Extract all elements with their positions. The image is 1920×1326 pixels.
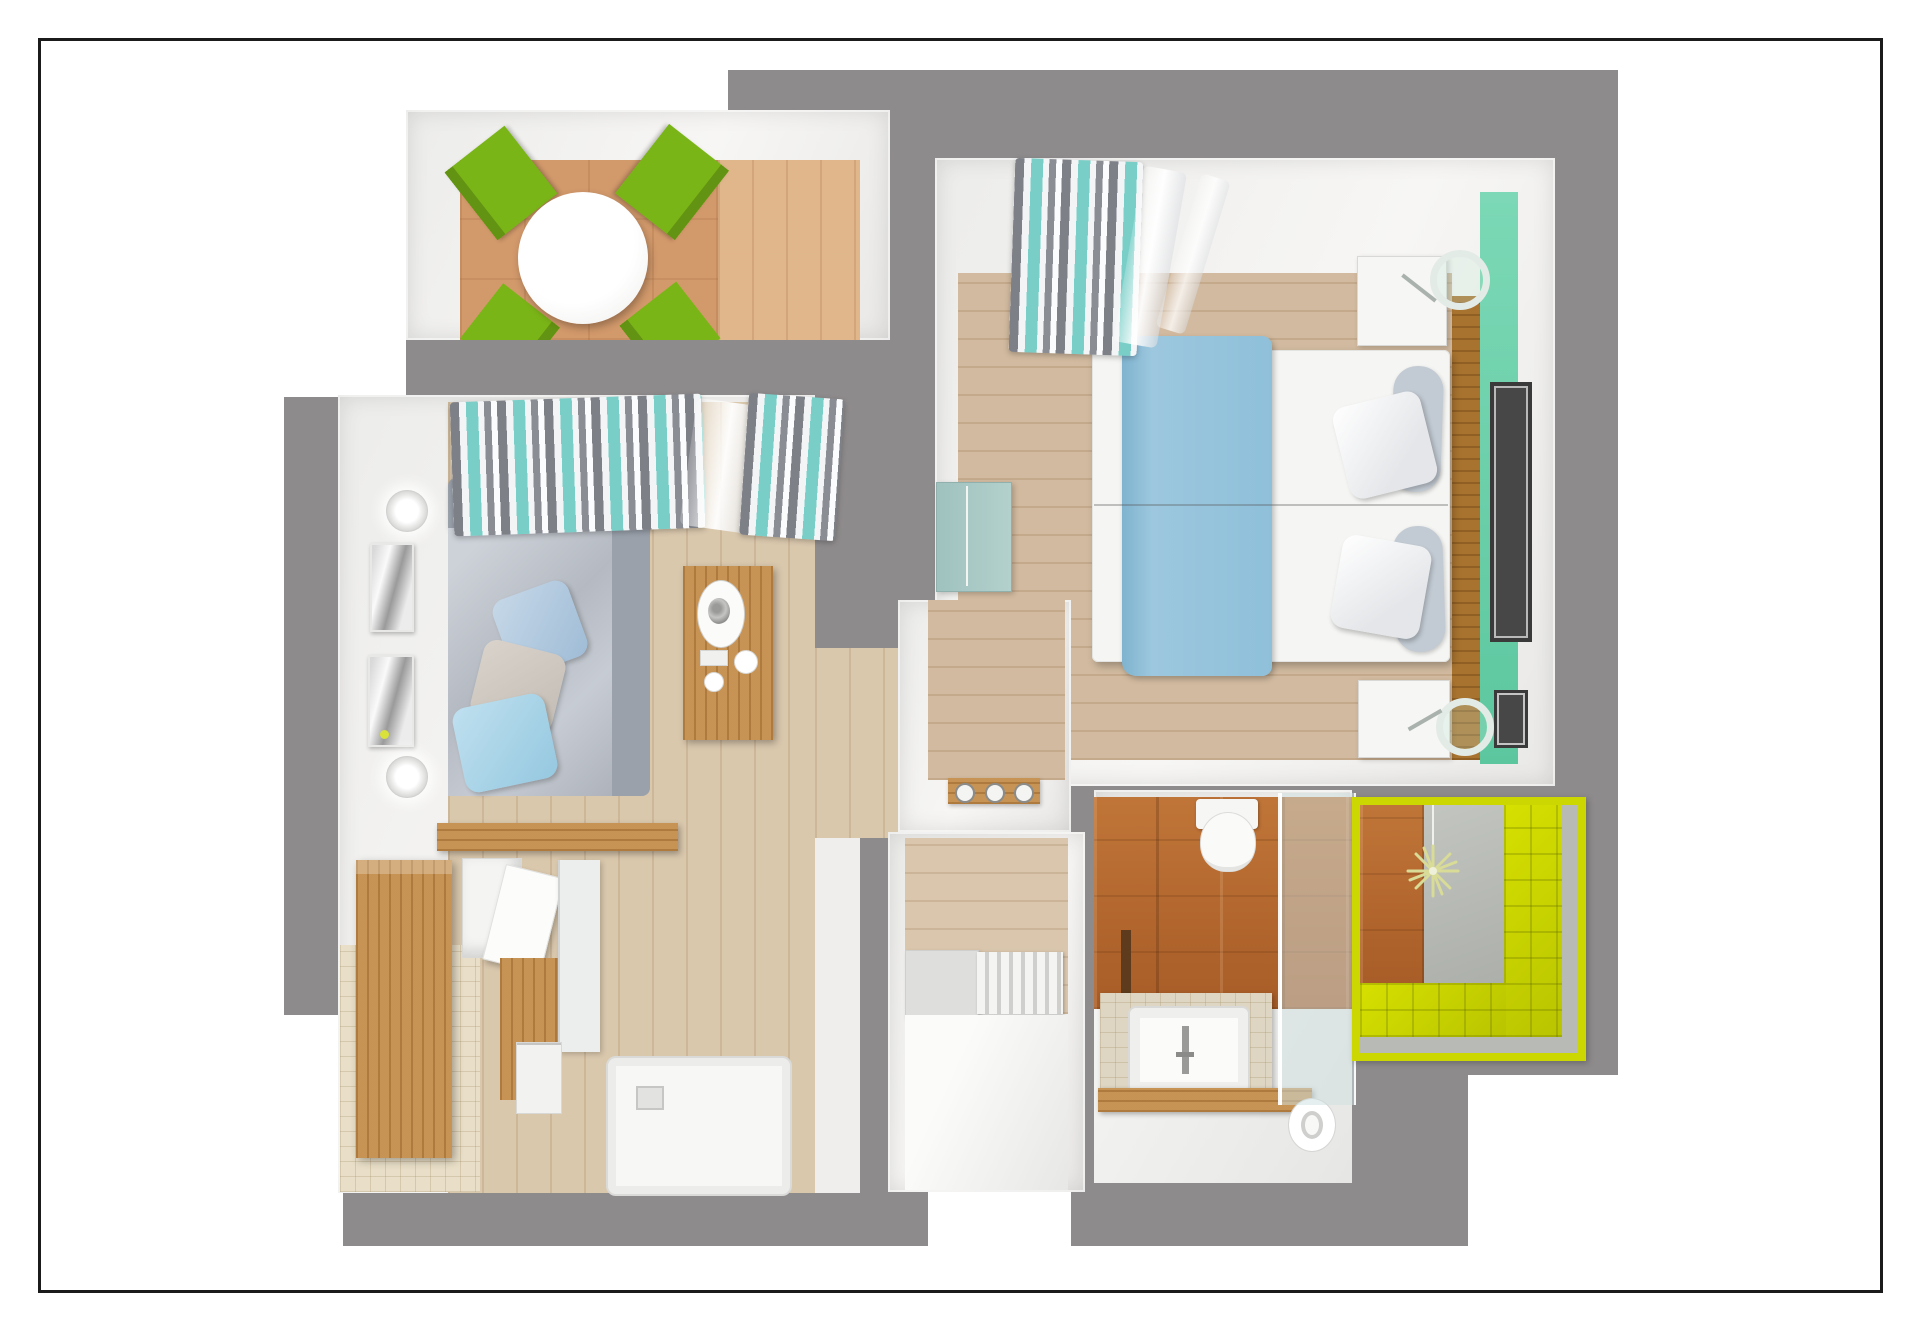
bed-pillow-2 [1329,533,1434,641]
bathroom-sink [1128,1006,1250,1094]
floor-plan-canvas [0,0,1920,1326]
stair-landing [905,950,979,1018]
shower-cord [1432,805,1434,847]
glass-partition [1278,793,1356,1105]
sink-faucet [1182,1026,1189,1074]
shower-lime-wall-bottom [1360,983,1506,1037]
wall-sconce-1 [386,490,428,532]
burner-knob-1 [955,783,975,803]
bed-blanket [1122,336,1272,676]
console-bowl-2 [704,672,724,692]
balcony-floor-wood [718,160,860,340]
fridge-panel [558,860,600,1052]
dining-table [518,192,648,324]
table-lamp-2 [1436,698,1494,756]
console-bar [437,823,678,851]
kitchen-drawer-unit [516,1042,562,1114]
headboard-bench [1452,296,1480,760]
bed-seam [1094,504,1448,506]
shower-lime-wall-right [1504,805,1562,1037]
niche-floor [928,600,1065,780]
rain-shower-head-icon [1404,842,1462,900]
teal-sideboard [936,482,1012,592]
towel-roll [1288,1098,1336,1152]
table-lamp-1 [1430,250,1490,310]
wall-mirror-1 [370,543,414,632]
living-curtain-left [450,394,707,537]
picture-frame-large [1490,382,1532,642]
plate-shells [708,598,730,624]
sideboard-handle-lines [966,486,972,586]
burner-knob-3 [1014,783,1034,803]
living-right-wall-band [815,838,860,1193]
sink-faucet-handle [1176,1052,1194,1057]
living-curtain-right [739,393,845,541]
wall-step-notch [284,1015,343,1246]
shower-tray [606,1056,792,1196]
wall-sconce-2 [386,756,428,798]
hallway-lower-floor [905,1015,1068,1190]
living-floor-extension [815,648,898,838]
mirror-accent-dot [380,730,389,739]
toilet-bowl [1200,812,1256,872]
burner-knob-2 [985,783,1005,803]
console-tray [700,650,728,666]
kitchen-tall-cabinet [356,860,452,1158]
wall-mirror-2 [368,655,414,747]
picture-frame-small [1494,690,1528,748]
console-bowl-1 [734,650,758,674]
shower-tray-drain [636,1086,664,1110]
room-balcony [406,110,890,340]
staircase [977,952,1063,1014]
